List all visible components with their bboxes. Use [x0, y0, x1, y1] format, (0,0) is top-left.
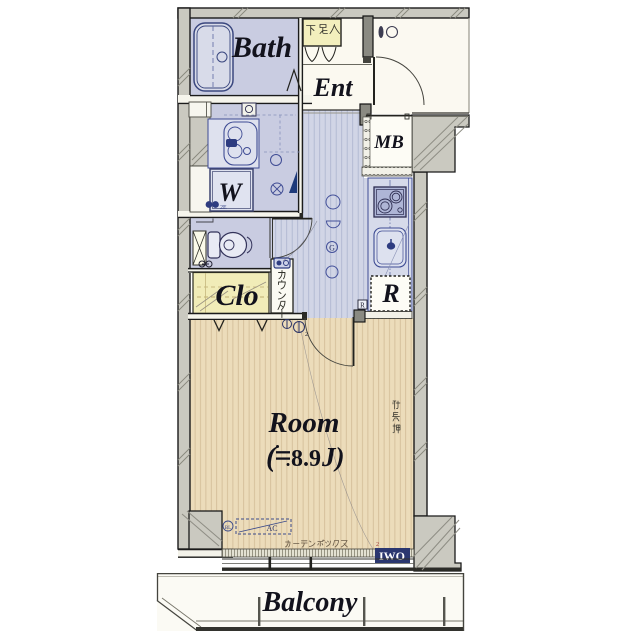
- svg-text:Clo: Clo: [215, 279, 258, 312]
- svg-text:2: 2: [305, 332, 308, 338]
- svg-text:Balcony: Balcony: [262, 587, 358, 618]
- svg-text:Room: Room: [268, 407, 340, 439]
- svg-text:R: R: [360, 302, 365, 310]
- svg-text:W: W: [218, 178, 243, 207]
- svg-text:AC: AC: [266, 524, 277, 533]
- svg-text:G: G: [329, 244, 335, 253]
- svg-text:2E: 2E: [220, 205, 227, 211]
- svg-text:Ent: Ent: [312, 73, 353, 102]
- svg-text:Bath: Bath: [231, 31, 292, 64]
- svg-text:R: R: [381, 279, 399, 308]
- svg-text:2: 2: [376, 542, 379, 548]
- svg-text:J): J): [321, 442, 345, 472]
- svg-text:IWO: IWO: [379, 549, 405, 563]
- svg-text:8.9: 8.9: [291, 446, 321, 472]
- svg-text:MB: MB: [373, 132, 404, 153]
- svg-text:BL: BL: [225, 526, 231, 531]
